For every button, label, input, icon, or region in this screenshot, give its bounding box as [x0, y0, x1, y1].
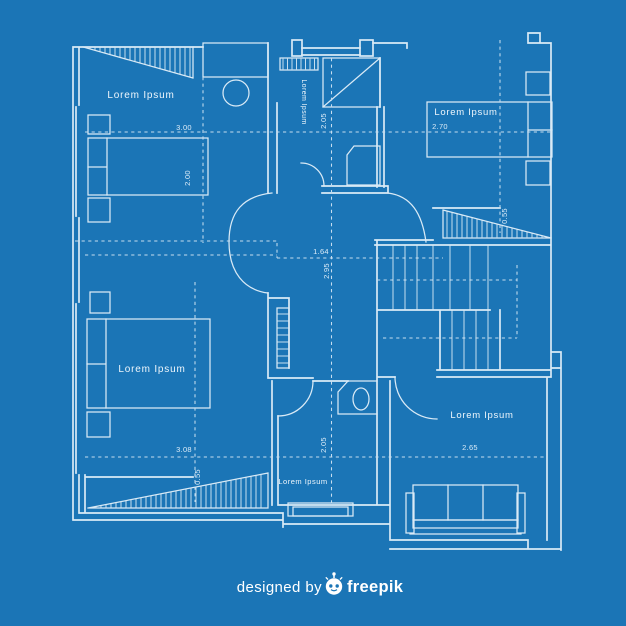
window-post: [360, 40, 373, 56]
room-label-bottom-middle: Lorem Ipsum: [278, 477, 327, 486]
side-table: [223, 80, 249, 106]
blueprint-floor-plan: Lorem Ipsum Lorem Ipsum Lorem Ipsum Lore…: [0, 0, 626, 626]
dim-hall-width: 1.64: [313, 247, 329, 256]
radiator: [277, 308, 289, 368]
dim-top-right-width: 2.70: [432, 122, 448, 131]
dim-bottom-middle-depth: 2.05: [319, 437, 328, 453]
blueprint-canvas: Lorem Ipsum Lorem Ipsum Lorem Ipsum Lore…: [0, 0, 626, 626]
dim-stairs-top: 0.55: [500, 208, 509, 224]
footer: designed by freepik: [237, 572, 404, 596]
dim-bottom-left-ramp: 0.55: [193, 469, 202, 485]
dim-living-width: 2.65: [462, 443, 478, 452]
vent-strip: [280, 58, 318, 70]
footer-brand: freepik: [347, 578, 404, 596]
dim-hall-height: 2.95: [322, 263, 331, 279]
footer-prefix: designed by: [237, 579, 322, 596]
room-label-top-left: Lorem Ipsum: [107, 90, 174, 101]
room-label-bathroom: Lorem Ipsum: [300, 79, 307, 124]
freepik-robot-icon: [326, 572, 342, 594]
room-label-top-right: Lorem Ipsum: [434, 107, 497, 118]
sofa: [406, 485, 525, 534]
window-post: [292, 40, 302, 56]
dim-top-left-bed: 2.00: [183, 170, 192, 186]
dim-bottom-left-width: 3.08: [176, 445, 192, 454]
sink: [338, 381, 377, 414]
room-label-bottom-left: Lorem Ipsum: [118, 364, 185, 375]
toilet: [347, 146, 380, 185]
room-label-living: Lorem Ipsum: [450, 410, 513, 421]
closet: [203, 43, 268, 77]
dim-top-left-width: 3.00: [176, 123, 192, 132]
dim-bathroom-depth: 2.05: [319, 113, 328, 129]
